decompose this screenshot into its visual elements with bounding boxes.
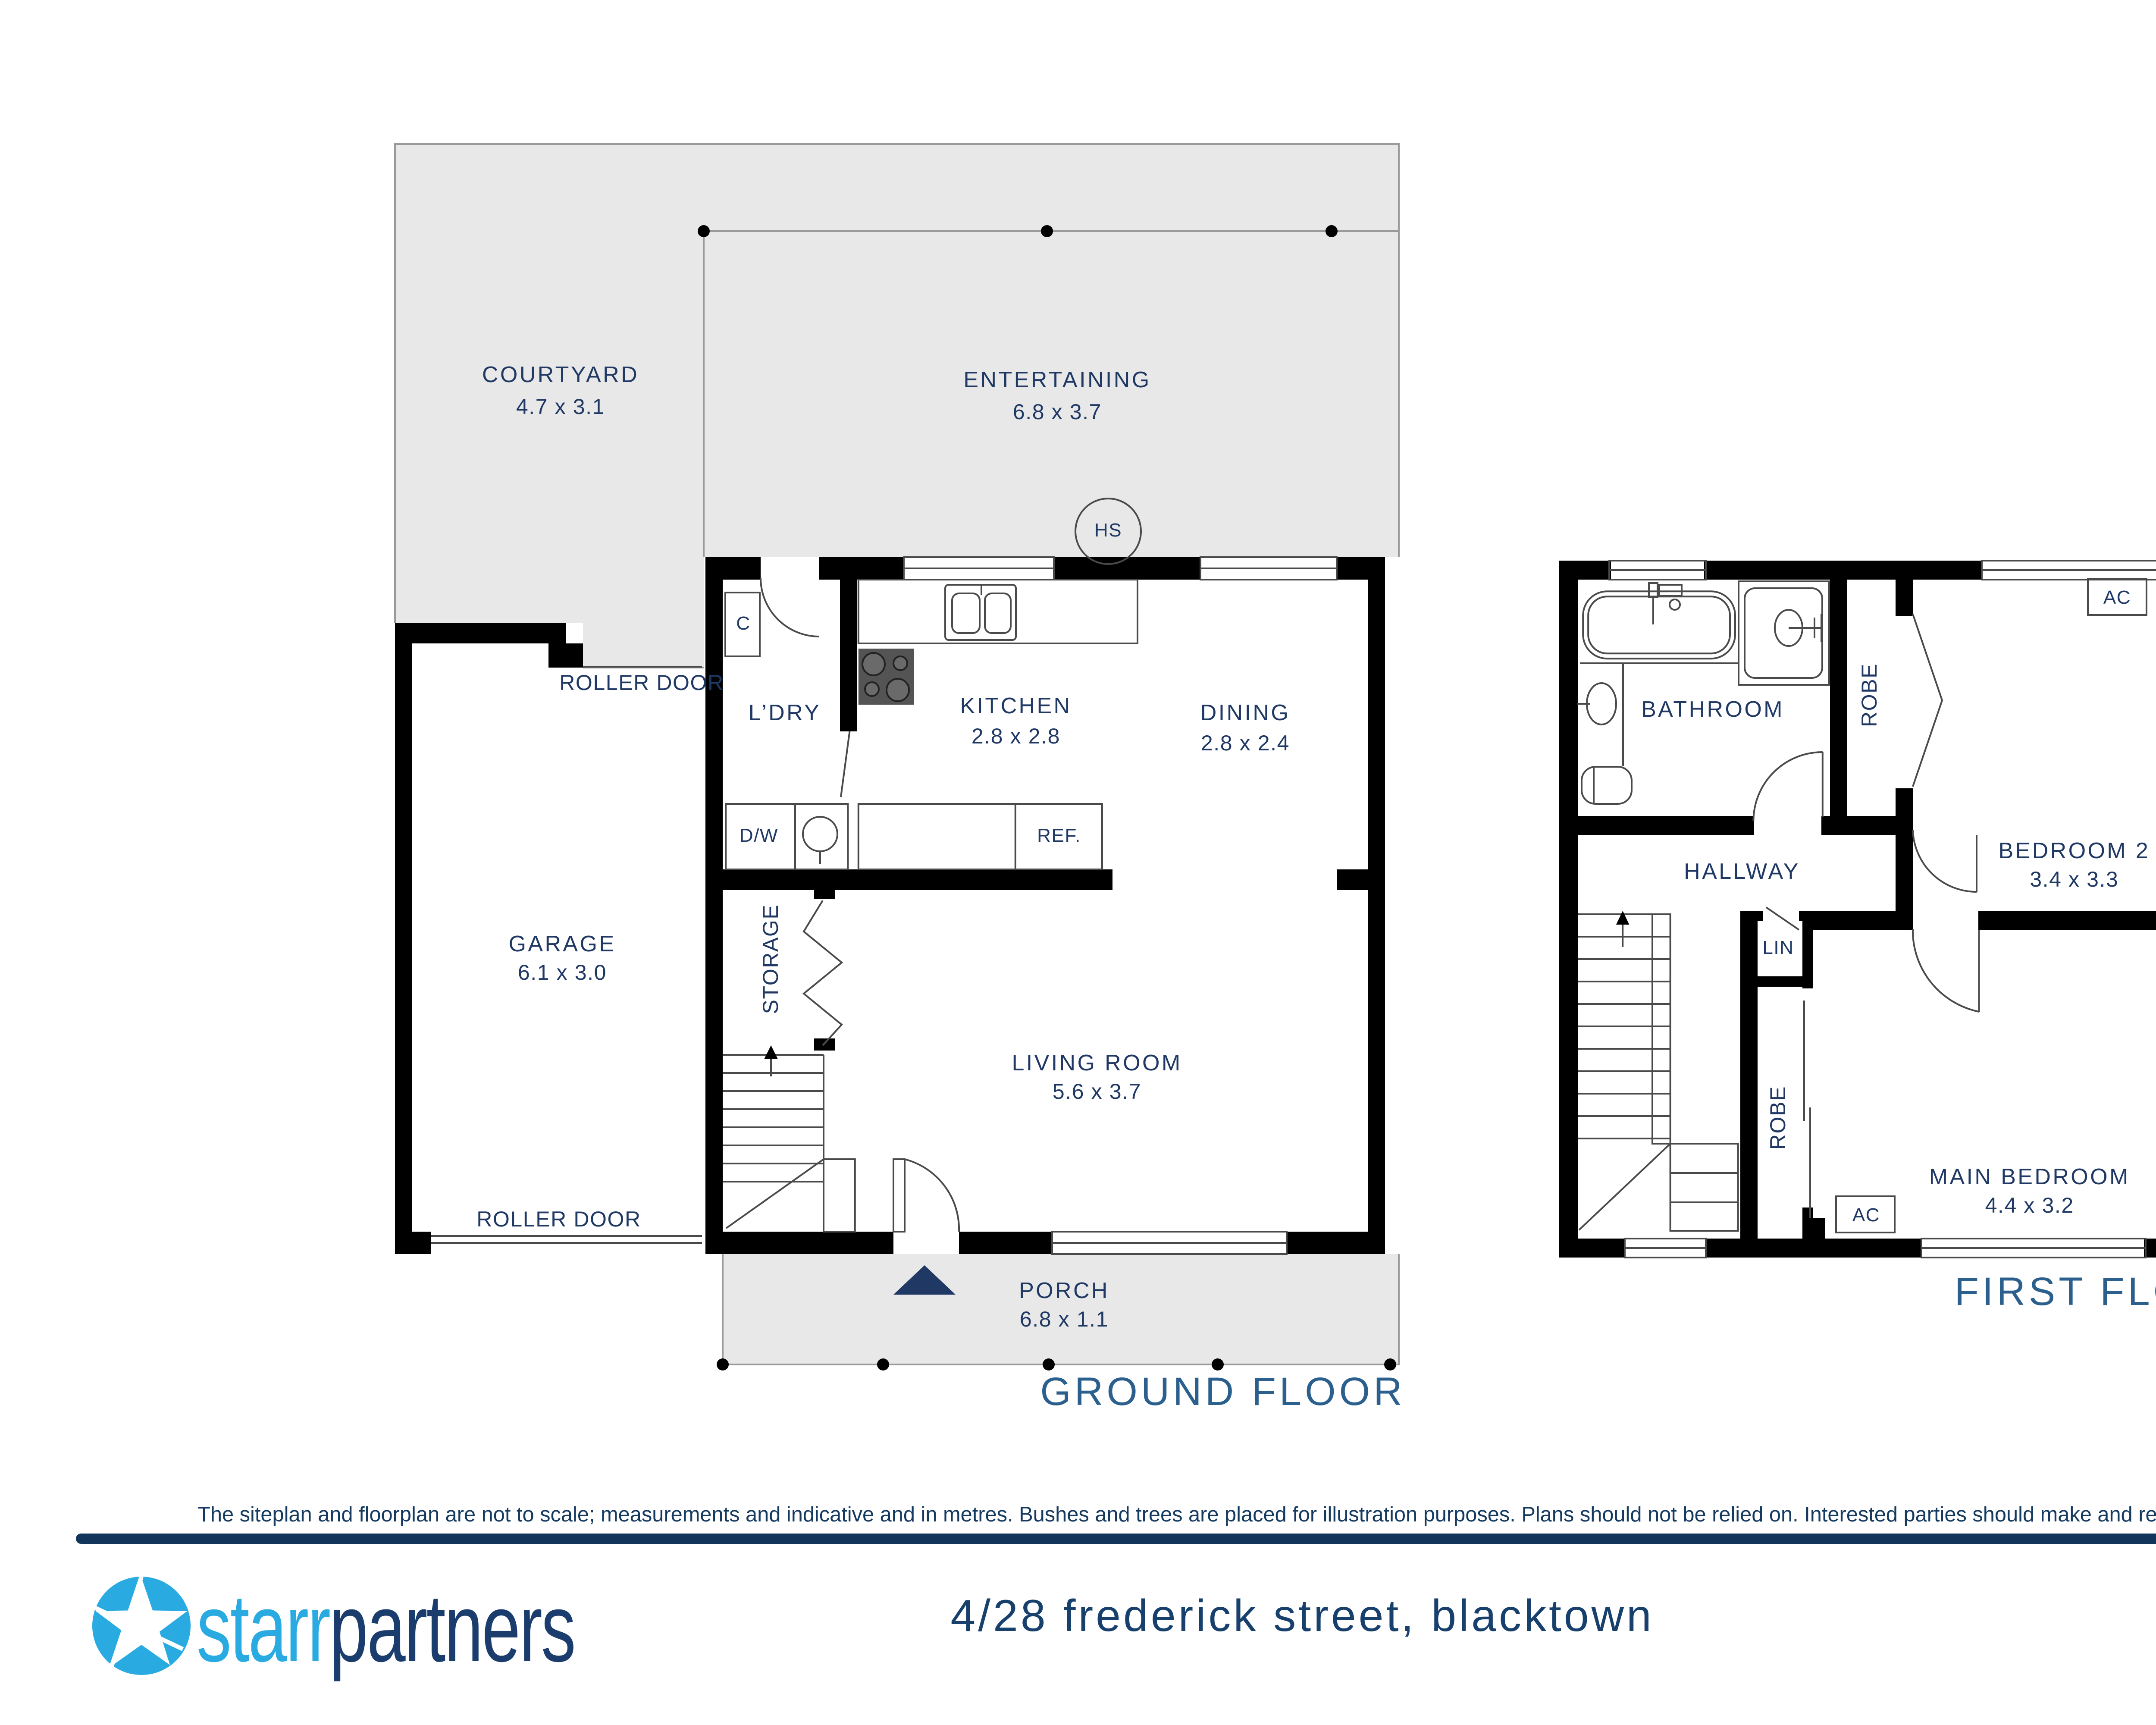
kitchen-label: KITCHEN bbox=[960, 693, 1072, 718]
hot-water-label: HS bbox=[1094, 521, 1122, 542]
laundry-label: L’DRY bbox=[749, 699, 821, 725]
gf-living-window bbox=[1052, 1232, 1287, 1254]
main-ac-label: AC bbox=[1852, 1205, 1880, 1226]
main-bedroom-door bbox=[1913, 929, 1979, 1012]
toilet bbox=[1582, 767, 1632, 804]
ff-stairs bbox=[1578, 911, 1738, 1231]
courtyard-label: COURTYARD bbox=[482, 361, 639, 387]
brand-partners: partners bbox=[329, 1573, 575, 1682]
bathroom-label: BATHROOM bbox=[1641, 696, 1784, 722]
windows bbox=[904, 557, 2156, 1258]
ff-bath-window bbox=[1609, 561, 1706, 580]
main-robe-label: ROBE bbox=[1766, 1086, 1790, 1150]
cooktop bbox=[859, 649, 914, 705]
kitchen-dims: 2.8 x 2.8 bbox=[971, 724, 1060, 749]
roller-door-top-label: ROLLER DOOR bbox=[559, 671, 724, 695]
gf-stairs bbox=[723, 1045, 855, 1232]
closet-door-arc bbox=[761, 578, 819, 637]
porch-label: PORCH bbox=[1019, 1277, 1109, 1303]
pedestal-basin bbox=[1577, 683, 1616, 724]
bedroom2-dims: 3.4 x 3.3 bbox=[2030, 868, 2118, 892]
storage-shelves bbox=[804, 900, 842, 1045]
entertaining-dims: 6.8 x 3.7 bbox=[1013, 400, 1102, 424]
entertaining-label: ENTERTAINING bbox=[963, 367, 1151, 392]
bed2-robe-label: ROBE bbox=[1858, 663, 1882, 727]
main-robe-sliders bbox=[1804, 1000, 1810, 1218]
linen-door-leaf bbox=[1766, 907, 1799, 930]
floorplan-page: COURTYARD 4.7 x 3.1 ENTERTAINING 6.8 x 3… bbox=[0, 0, 2156, 1725]
bed2-robe-bifold bbox=[1913, 614, 1942, 787]
living-dims: 5.6 x 3.7 bbox=[1053, 1080, 1141, 1104]
ff-stairs-window bbox=[1625, 1239, 1706, 1258]
brand-star-icon bbox=[92, 1577, 191, 1675]
vanity-sink bbox=[1739, 581, 1829, 685]
plan-linework bbox=[0, 0, 2156, 1725]
brand-logo: starrpartners bbox=[197, 1580, 575, 1677]
porch-dims: 6.8 x 1.1 bbox=[1020, 1308, 1109, 1332]
gf-kitchen-window bbox=[904, 557, 1054, 580]
front-door bbox=[893, 1159, 959, 1232]
dining-label: DINING bbox=[1200, 699, 1290, 725]
bathtub bbox=[1583, 583, 1735, 659]
bedroom2-door bbox=[1913, 830, 1977, 892]
gf-dining-window bbox=[1200, 557, 1337, 580]
garage-dims: 6.1 x 3.0 bbox=[518, 961, 607, 985]
ff-main-window bbox=[1921, 1239, 2146, 1258]
ground-floor-title: GROUND FLOOR bbox=[1040, 1369, 1405, 1415]
first-floor-title: FIRST FLOOR bbox=[1955, 1269, 2156, 1315]
storage-label: STORAGE bbox=[759, 904, 783, 1014]
roller-door-bottom-label: ROLLER DOOR bbox=[476, 1207, 641, 1232]
fridge-label: REF. bbox=[1037, 826, 1081, 847]
garage-label: GARAGE bbox=[509, 931, 616, 957]
property-address: 4/28 frederick street, blacktown bbox=[950, 1590, 1654, 1643]
dishwasher-label: D/W bbox=[740, 826, 778, 847]
ff-bed2-window bbox=[1982, 561, 2156, 580]
entry-marker-triangle bbox=[893, 1265, 956, 1295]
laundry-door-leaf bbox=[841, 731, 849, 797]
bathroom-door bbox=[1753, 752, 1822, 821]
bedroom2-label: BEDROOM 2 bbox=[1999, 837, 2150, 863]
main-bedroom-label: MAIN BEDROOM bbox=[1929, 1164, 2130, 1189]
dining-dims: 2.8 x 2.4 bbox=[1201, 731, 1290, 756]
linen-label: LIN bbox=[1762, 938, 1794, 959]
hallway-label: HALLWAY bbox=[1684, 858, 1800, 884]
kitchen-bench bbox=[859, 580, 1138, 643]
bed2-ac-label: AC bbox=[2103, 587, 2131, 608]
living-label: LIVING ROOM bbox=[1012, 1050, 1182, 1076]
courtyard-dims: 4.7 x 3.1 bbox=[516, 395, 605, 419]
closet-label: C bbox=[736, 614, 750, 635]
brand-starr: starr bbox=[197, 1573, 329, 1682]
main-bedroom-dims: 4.4 x 3.2 bbox=[1985, 1194, 2074, 1218]
footer-divider-bar bbox=[76, 1534, 2156, 1543]
disclaimer-text: The siteplan and floorplan are not to sc… bbox=[34, 1502, 2156, 1527]
